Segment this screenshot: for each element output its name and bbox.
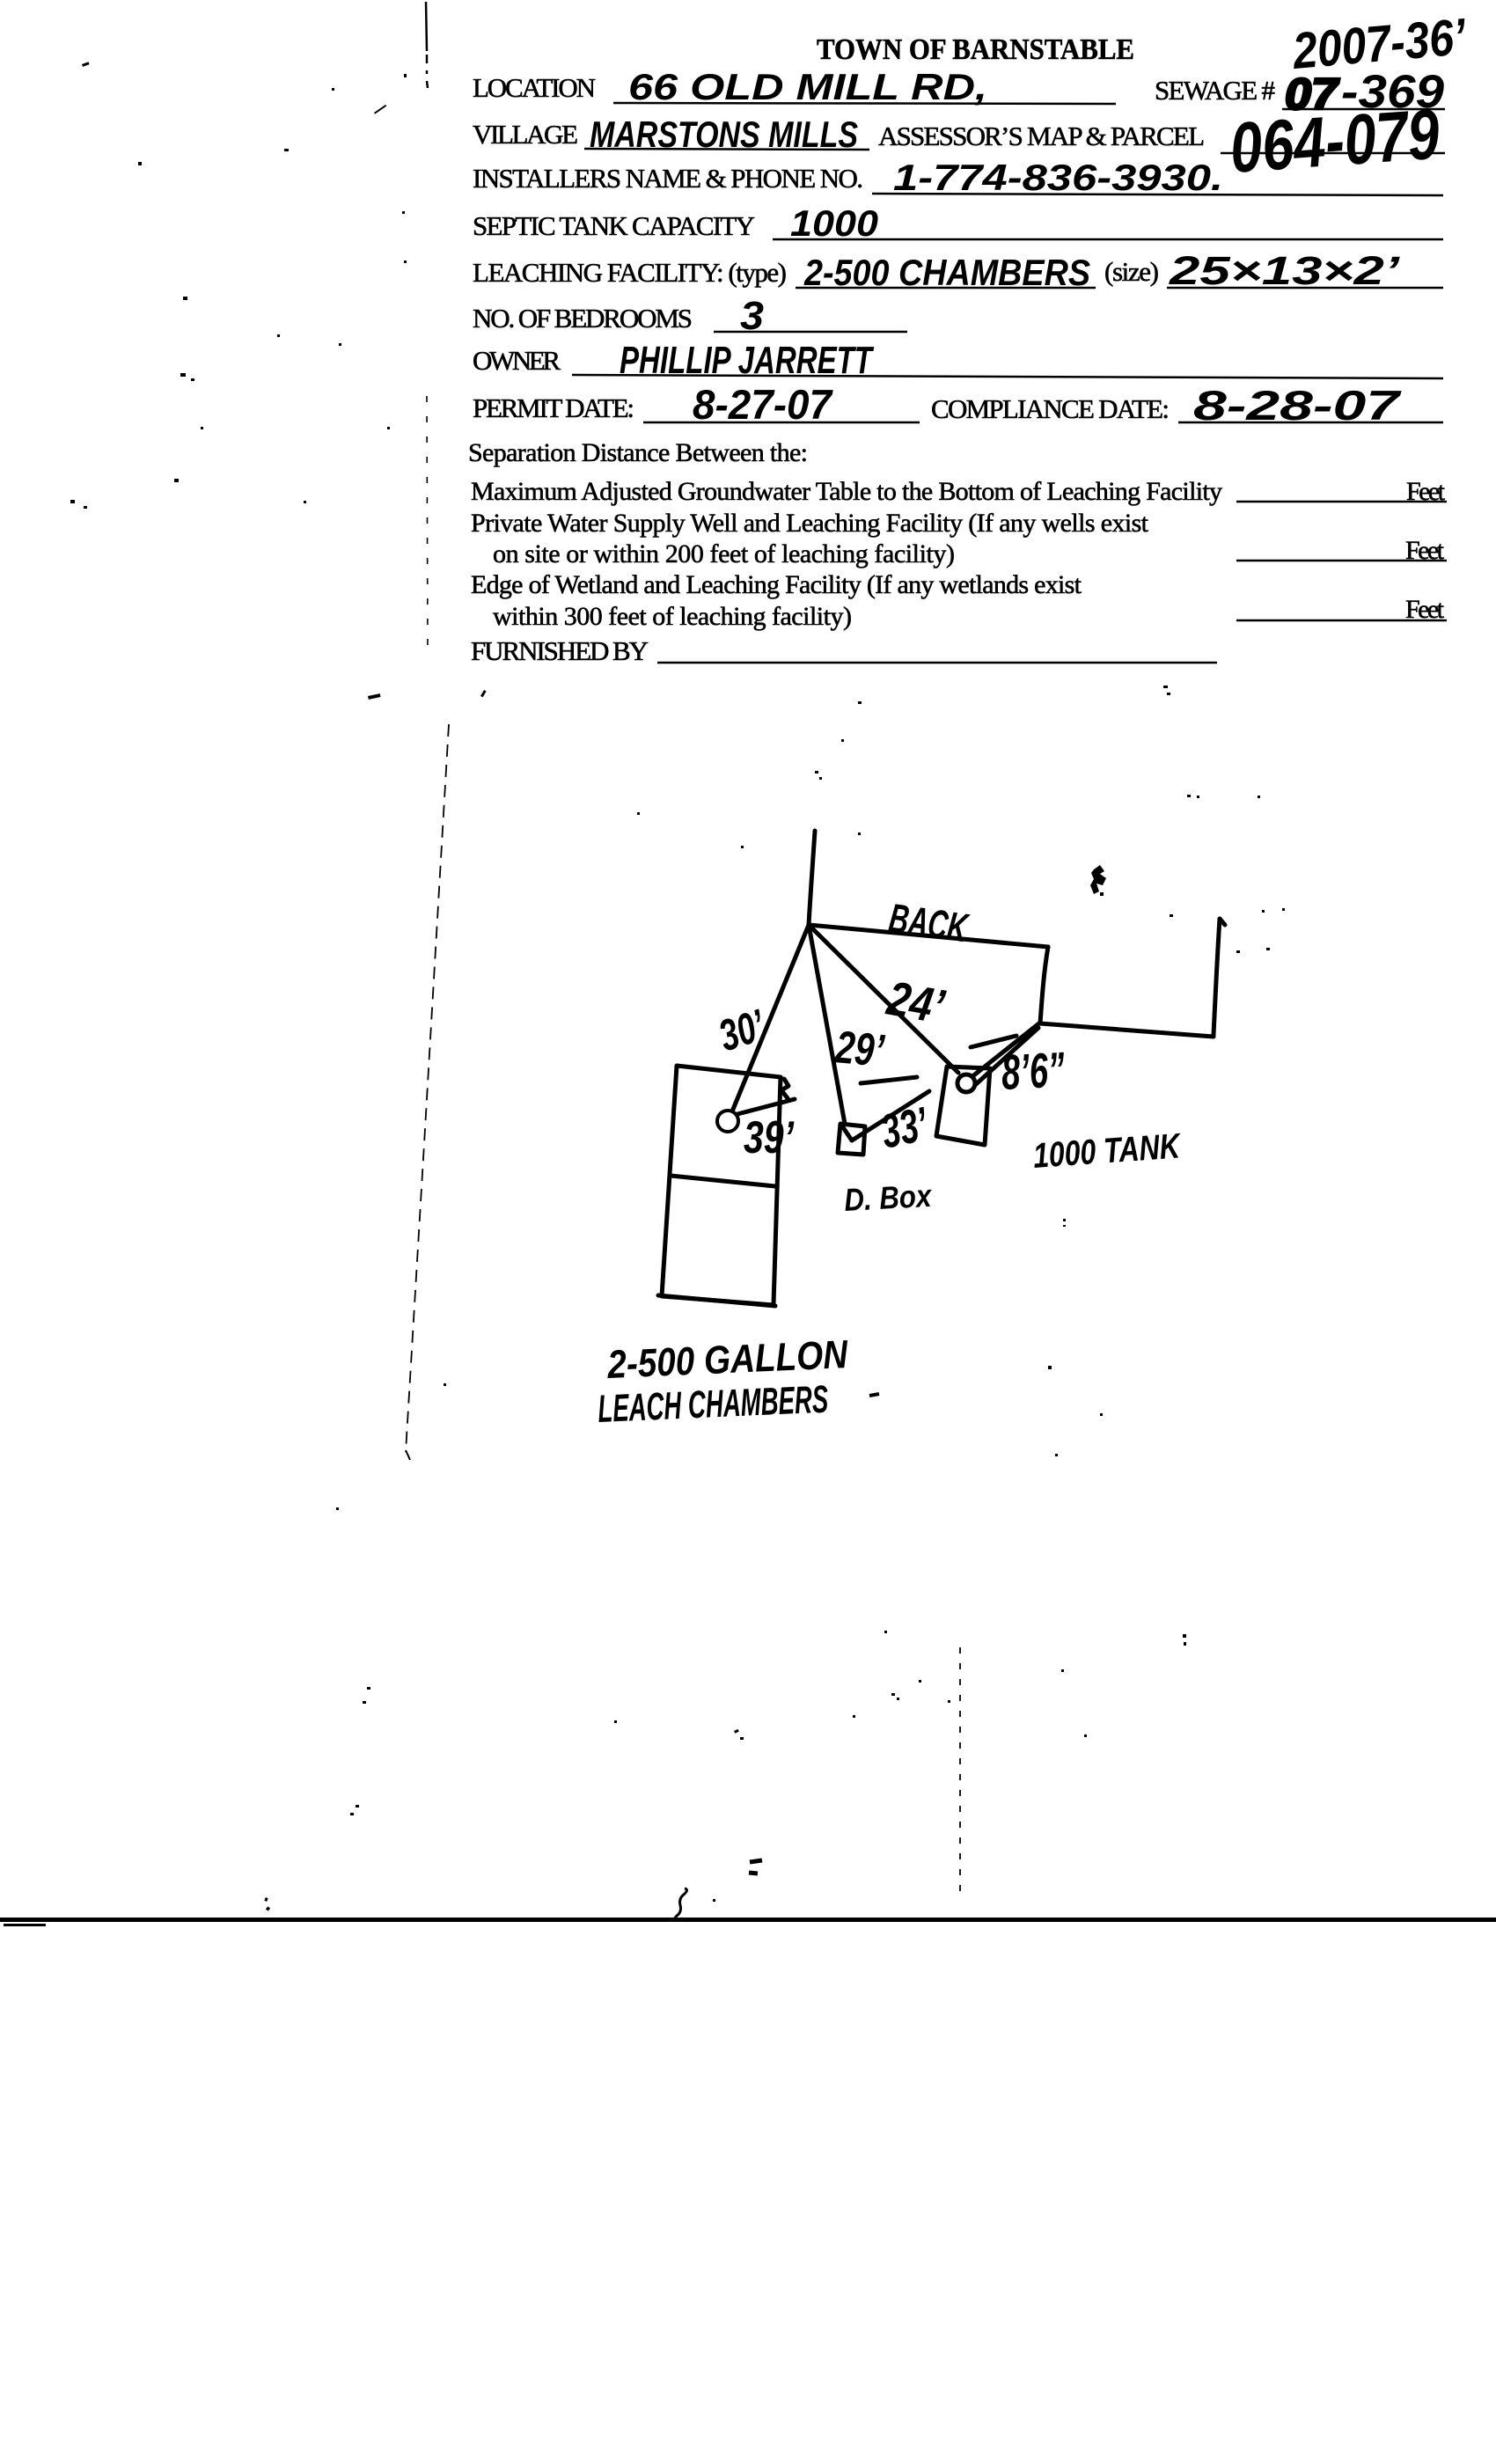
svg-text:8-27-07: 8-27-07 [693,381,833,428]
svg-text:PHILLIP JARRETT: PHILLIP JARRETT [620,339,874,382]
svg-text:25×13×2’: 25×13×2’ [1169,248,1401,293]
svg-text:LOCATION: LOCATION [473,72,596,103]
svg-text:8’6”: 8’6” [1000,1041,1066,1100]
svg-text:30’: 30’ [713,1000,772,1060]
svg-text:66 OLD MILL RD,: 66 OLD MILL RD, [628,66,987,107]
svg-text:INSTALLERS NAME & PHONE NO.: INSTALLERS NAME & PHONE NO. [473,163,863,194]
svg-text:LEACHING FACILITY: (type): LEACHING FACILITY: (type) [473,257,787,288]
svg-text:COMPLIANCE DATE:: COMPLIANCE DATE: [931,393,1170,424]
svg-text:LEACH CHAMBERS: LEACH CHAMBERS [597,1378,829,1431]
svg-text:1000: 1000 [790,202,878,244]
svg-text:3: 3 [740,293,764,338]
svg-text:1000 TANK: 1000 TANK [1032,1126,1184,1176]
svg-text:on site or within 200 feet of: on site or within 200 feet of leaching f… [493,539,955,568]
svg-text:TOWN OF BARNSTABLE: TOWN OF BARNSTABLE [817,33,1134,66]
svg-text:within 300 feet of leaching fa: within 300 feet of leaching facility) [493,602,852,631]
svg-text:Edge of Wetland and Leaching F: Edge of Wetland and Leaching Facility (I… [471,570,1082,599]
svg-text:SEWAGE #: SEWAGE # [1155,75,1275,106]
svg-text:(size): (size) [1104,256,1159,287]
svg-text:NO. OF BEDROOMS: NO. OF BEDROOMS [473,303,693,334]
svg-text:Separation Distance Between th: Separation Distance Between the: [468,438,808,467]
svg-text:8-28-07: 8-28-07 [1193,382,1402,429]
svg-text:33’: 33’ [876,1097,933,1159]
svg-text:BACK: BACK [886,894,972,950]
svg-text:Private Water Supply Well and: Private Water Supply Well and Leaching F… [471,509,1149,538]
svg-text:39’: 39’ [744,1112,795,1163]
svg-text:FURNISHED BY: FURNISHED BY [471,635,649,666]
svg-text:SEPTIC TANK CAPACITY: SEPTIC TANK CAPACITY [473,210,755,241]
svg-text:ASSESSOR’S MAP & PARCEL: ASSESSOR’S MAP & PARCEL [878,121,1205,151]
svg-text:064-079: 064-079 [1228,95,1442,188]
svg-text:VILLAGE: VILLAGE [473,119,578,150]
svg-text:24’: 24’ [883,971,949,1034]
svg-text:2-500 CHAMBERS: 2-500 CHAMBERS [803,252,1090,293]
svg-text:Maximum Adjusted Groundwater T: Maximum Adjusted Groundwater Table to th… [471,477,1222,506]
svg-text:OWNER: OWNER [473,345,561,376]
svg-text:PERMIT DATE:: PERMIT DATE: [473,392,634,423]
svg-text:29’: 29’ [832,1022,887,1077]
svg-text:1-774-836-3930.: 1-774-836-3930. [893,157,1223,198]
svg-text:MARSTONS MILLS: MARSTONS MILLS [590,114,858,155]
svg-text:D. Box: D. Box [843,1177,934,1218]
